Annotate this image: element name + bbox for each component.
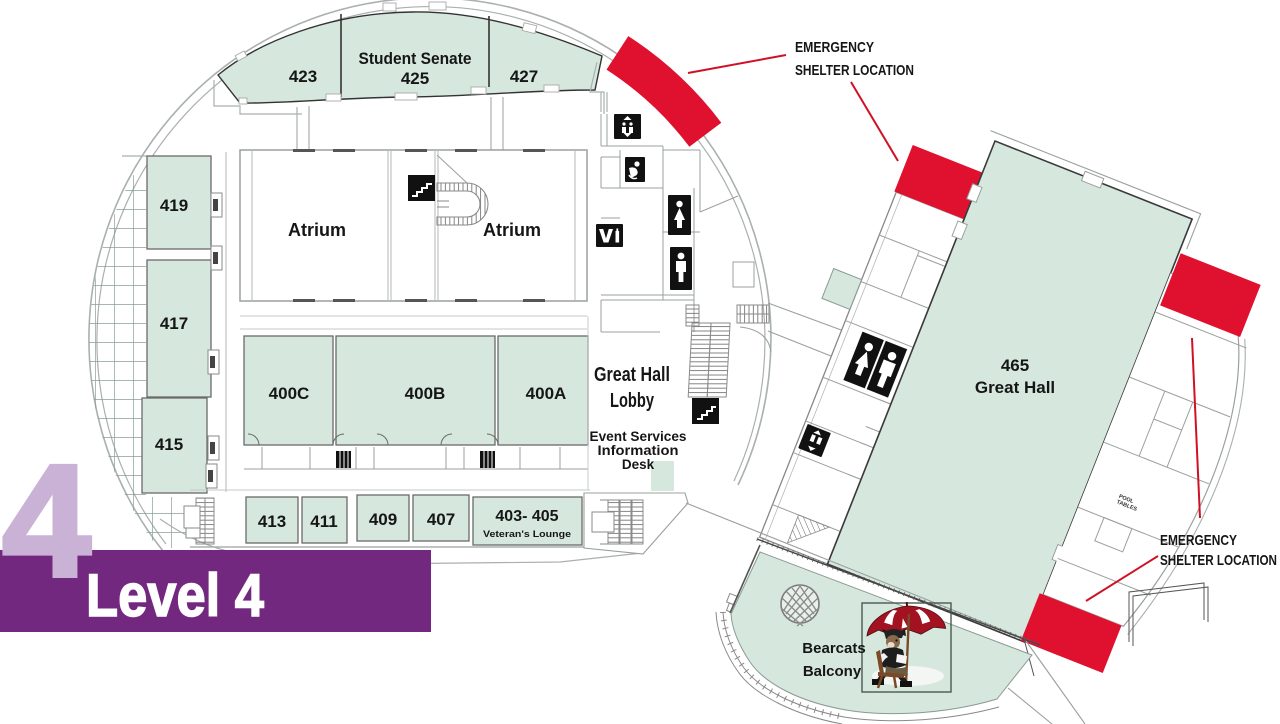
- svg-text:423: 423: [289, 67, 317, 86]
- svg-text:417: 417: [160, 314, 188, 333]
- svg-text:427: 427: [510, 67, 538, 86]
- svg-text:465: 465: [1001, 356, 1029, 375]
- svg-text:Veteran's Lounge: Veteran's Lounge: [483, 529, 571, 540]
- svg-text:Great Hall: Great Hall: [975, 378, 1055, 397]
- svg-text:400B: 400B: [405, 384, 446, 403]
- svg-text:4: 4: [2, 431, 91, 610]
- svg-text:Lobby: Lobby: [610, 390, 655, 412]
- svg-text:Great Hall: Great Hall: [594, 364, 670, 386]
- svg-text:407: 407: [427, 510, 455, 529]
- svg-text:EMERGENCY: EMERGENCY: [1160, 532, 1237, 549]
- svg-text:Bearcats: Bearcats: [802, 640, 865, 657]
- svg-text:411: 411: [310, 512, 337, 531]
- svg-text:425: 425: [401, 69, 429, 88]
- svg-text:Level 4: Level 4: [86, 562, 265, 629]
- svg-text:409: 409: [369, 510, 397, 529]
- svg-text:419: 419: [160, 196, 188, 215]
- svg-text:415: 415: [155, 435, 183, 454]
- svg-text:SHELTER LOCATION: SHELTER LOCATION: [1160, 552, 1277, 569]
- svg-text:400C: 400C: [269, 384, 310, 403]
- svg-text:403- 405: 403- 405: [495, 508, 558, 525]
- svg-text:SHELTER LOCATION: SHELTER LOCATION: [795, 62, 914, 79]
- svg-text:Desk: Desk: [622, 457, 655, 472]
- svg-text:Student Senate: Student Senate: [359, 49, 472, 68]
- svg-text:Balcony: Balcony: [803, 663, 862, 680]
- svg-text:Atrium: Atrium: [483, 220, 541, 240]
- svg-text:400A: 400A: [526, 384, 567, 403]
- svg-text:Atrium: Atrium: [288, 220, 346, 240]
- svg-text:EMERGENCY: EMERGENCY: [795, 39, 874, 56]
- svg-text:Information: Information: [598, 443, 679, 458]
- svg-text:413: 413: [258, 512, 286, 531]
- svg-text:Event Services: Event Services: [590, 429, 687, 444]
